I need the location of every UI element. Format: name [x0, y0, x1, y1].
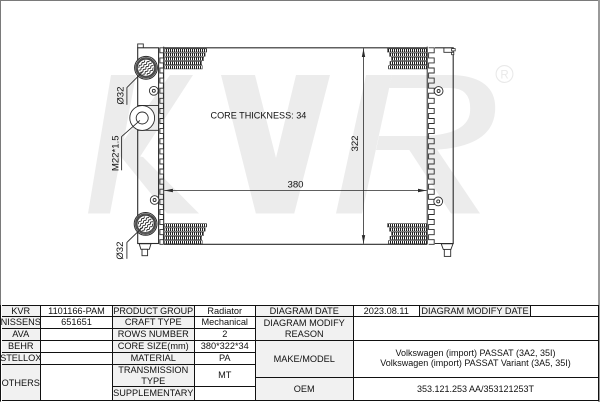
svg-text:322: 322: [350, 135, 361, 151]
svg-text:CORE THICKNESS: 34: CORE THICKNESS: 34: [211, 111, 307, 121]
svg-text:Ø32: Ø32: [116, 87, 127, 105]
svg-text:M22*1.5: M22*1.5: [110, 135, 121, 171]
svg-text:Ø32: Ø32: [115, 242, 126, 260]
svg-text:380: 380: [287, 180, 303, 191]
